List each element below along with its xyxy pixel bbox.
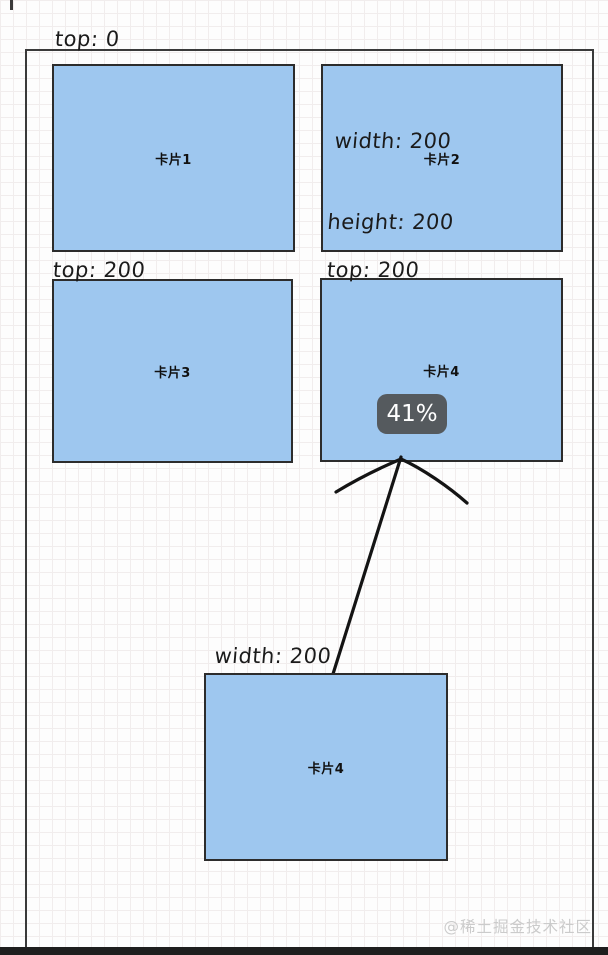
bottom-card-width-note: width: 200 bbox=[213, 643, 349, 670]
card-4-label: 卡片4 bbox=[423, 361, 460, 380]
visibility-ratio-tooltip: 41% bbox=[377, 394, 447, 434]
top-0-annotation: top: 0 bbox=[54, 26, 121, 53]
top-edge-tick bbox=[10, 0, 13, 10]
top-200-annotation-right: top: 200 bbox=[326, 257, 421, 284]
card-4-detail: 卡片4 bbox=[204, 673, 448, 861]
card-2-width-note: width: 200 bbox=[333, 128, 462, 155]
card-4: 卡片4 bbox=[320, 278, 563, 462]
card-3-label: 卡片3 bbox=[154, 362, 191, 381]
bottom-edge-bar bbox=[0, 947, 608, 955]
top-200-annotation-left: top: 200 bbox=[52, 257, 147, 284]
diagram-canvas: 卡片1 卡片2 width: 200 height: 200 卡片3 卡片4 t… bbox=[0, 0, 608, 955]
card-1: 卡片1 bbox=[52, 64, 295, 252]
card-1-label: 卡片1 bbox=[155, 149, 192, 168]
card-4-detail-label: 卡片4 bbox=[308, 758, 345, 777]
card-2-height-note: height: 200 bbox=[326, 209, 455, 236]
card-3: 卡片3 bbox=[52, 279, 293, 463]
watermark: @稀土掘金技术社区 bbox=[443, 915, 592, 937]
